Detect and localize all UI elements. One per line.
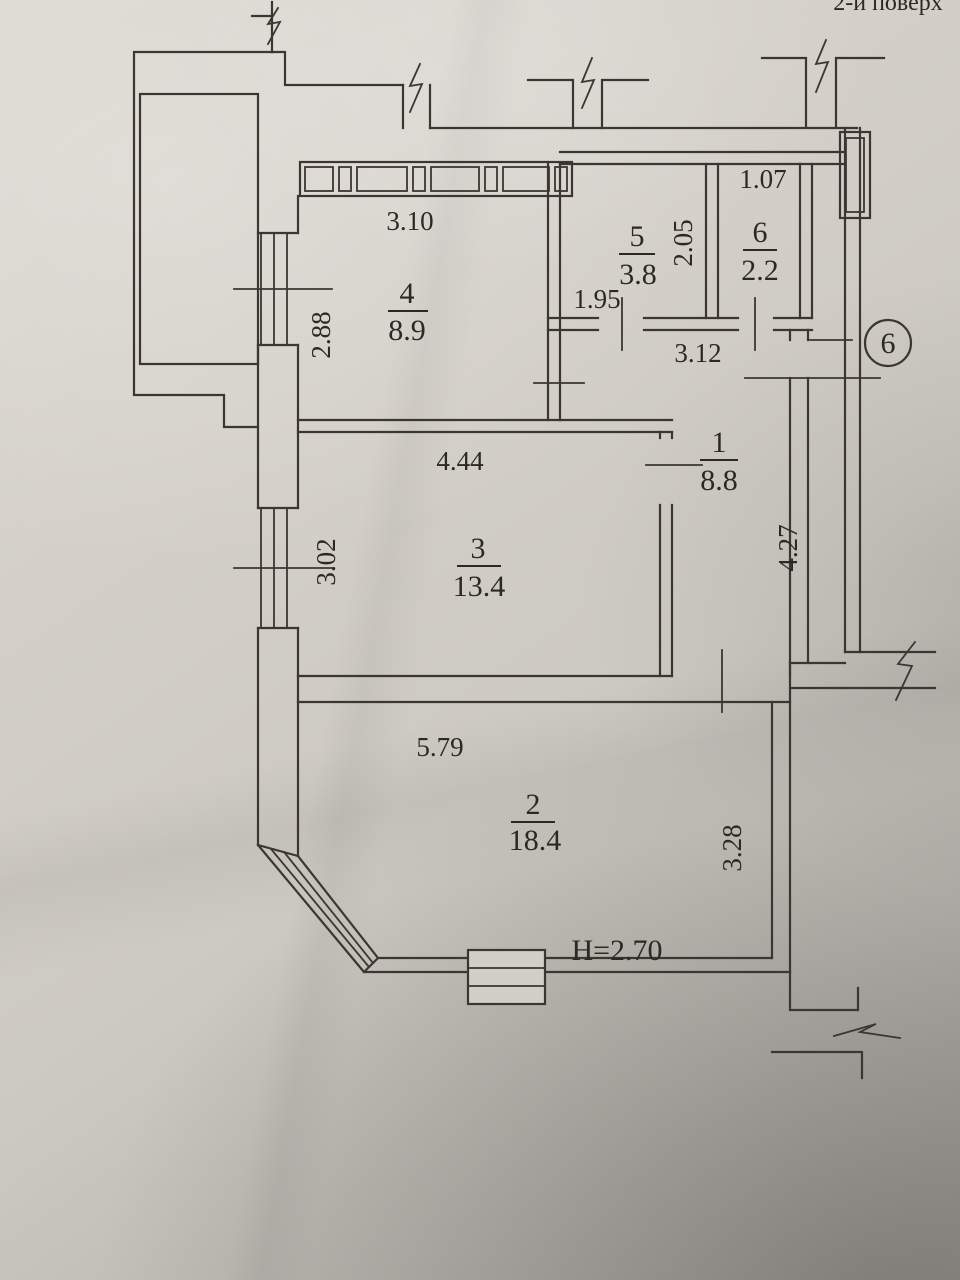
room3-number: 3: [471, 532, 486, 565]
neighbour-balcony: [140, 94, 258, 364]
dim-room2-top: 5.79: [416, 732, 463, 762]
dim-room2-side: 3.28: [717, 824, 747, 871]
wall-room4-room5: [548, 162, 560, 420]
room4-number: 4: [400, 277, 415, 310]
wall-corridor-bottom: [790, 663, 845, 688]
axis-number: 6: [881, 327, 896, 360]
wall-cut-top-left: [252, 2, 272, 52]
wall-room6-right: [800, 164, 812, 318]
room2-area: 18.4: [509, 824, 562, 857]
neighbour-outline: [134, 52, 272, 427]
floor-plan-photo: 6 2-й поверх 3.10 4 8.9 2.88 5 3.8 2.05 …: [0, 0, 960, 1280]
window-band-panes: [305, 167, 567, 191]
exterior-walls: [134, 2, 935, 700]
break-bolt-icon: [896, 642, 915, 700]
wall-top-rooms56: [560, 152, 845, 164]
dim-room6-top: 1.07: [739, 164, 786, 194]
room5-number: 5: [630, 220, 645, 253]
dim-hall-top: 3.12: [674, 338, 721, 368]
room1-area: 8.8: [700, 464, 738, 497]
wall-cut-1: [403, 85, 430, 128]
room4-walls: [234, 162, 572, 856]
dim-room3-side: 3.02: [311, 538, 341, 585]
labels: 2-й поверх 3.10 4 8.9 2.88 5 3.8 2.05 1.…: [306, 0, 943, 967]
wall-chamfer: [258, 845, 378, 972]
wall-room5-room6: [706, 164, 718, 318]
wall-bottom-right-cut: [772, 1052, 862, 1078]
room2-number: 2: [526, 788, 541, 821]
room3-walls: [298, 420, 845, 712]
wall-bottom-right: [790, 972, 858, 1010]
wall-hall-right: [790, 330, 808, 676]
wall-room3-top: [298, 420, 672, 432]
dim-room4-side: 2.88: [306, 311, 336, 358]
wall-cut-right: [845, 652, 935, 688]
window-chamfer: [271, 849, 373, 967]
dim-corridor-side: 4.27: [773, 524, 803, 571]
axis-marker: 6: [865, 320, 911, 366]
room5-room6-hall-walls: [534, 152, 880, 676]
page-title: 2-й поверх: [833, 0, 943, 16]
dim-room3-top: 4.44: [436, 446, 484, 476]
wall-room3-room2: [298, 676, 790, 702]
room2-walls: [258, 663, 900, 1078]
wall-cut-3: [762, 58, 884, 126]
vent-shaft-inner: [846, 138, 864, 212]
wall-right-exterior: [845, 128, 860, 652]
window-bottom-patch: [468, 950, 545, 1004]
room4-area: 8.9: [388, 314, 426, 347]
break-bolt-icon: [816, 40, 828, 92]
wall-cut-2: [528, 80, 648, 128]
dim-room4-top: 3.10: [386, 206, 433, 236]
break-bolt-icon: [834, 1024, 900, 1038]
room1-number: 1: [712, 426, 727, 459]
wall-top-left-segment: [272, 52, 403, 85]
dim-room5-side: 2.05: [668, 219, 698, 266]
break-bolt-icon: [410, 64, 422, 112]
wall-room2-right: [772, 663, 790, 972]
room6-area: 2.2: [741, 254, 779, 287]
room5-area: 3.8: [619, 258, 657, 291]
room6-number: 6: [753, 216, 768, 249]
floor-plan-drawing: 6 2-й поверх 3.10 4 8.9 2.88 5 3.8 2.05 …: [0, 0, 960, 1280]
wall-hall-top: [548, 318, 812, 330]
room3-area: 13.4: [453, 570, 506, 603]
break-bolt-icon: [268, 8, 280, 44]
dim-hall-small: 1.95: [573, 284, 620, 314]
ceiling-height-label: H=2.70: [571, 934, 662, 967]
wall-room3-right: [660, 432, 672, 676]
break-bolt-icon: [582, 58, 594, 108]
